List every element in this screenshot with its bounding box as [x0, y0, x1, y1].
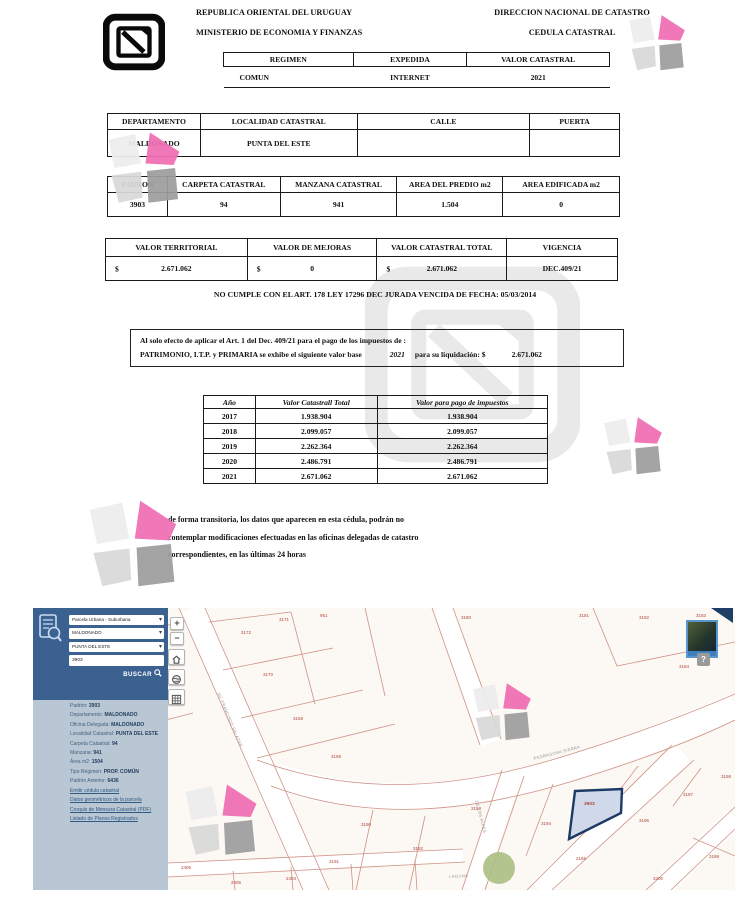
- padron-table: PADRON CARPETA CATASTRAL MANZANA CATASTR…: [107, 176, 620, 217]
- parcel-number-label: 3180: [461, 615, 471, 620]
- info-field: Manzana: 941: [70, 750, 164, 756]
- col-header: Valor para pago de impuestos: [377, 396, 547, 409]
- parcel-number-label: 3169: [293, 716, 303, 721]
- parcel-number-label: 3172: [241, 630, 251, 635]
- parcel-number-label: 3182: [639, 615, 649, 620]
- col-header: VALOR CATASTRAL TOTAL: [377, 239, 507, 257]
- cell-area-predio: 1.504: [397, 193, 503, 217]
- parcel-type-select[interactable]: Parcela Urbana - Suburbana: [69, 615, 164, 626]
- sidebar-search-panel: Parcela Urbana - Suburbana MALDONADO PUN…: [33, 608, 168, 700]
- header-direction: DIRECCION NACIONAL DE CATASTRO: [484, 3, 660, 23]
- parcel-number-label: 3199: [709, 854, 719, 859]
- dnc-logo: [103, 12, 165, 72]
- layers-button[interactable]: [168, 689, 185, 705]
- parcel-number-label: 3200: [653, 876, 663, 881]
- sidebar-info-list: Padrón: 3903Departamento: MALDONADOOfici…: [70, 703, 164, 784]
- col-header: CARPETA CATASTRAL: [167, 177, 280, 193]
- cell-regimen: COMUN: [224, 67, 354, 88]
- locality-select[interactable]: PUNTA DEL ESTE: [69, 642, 164, 653]
- col-header: Valor Catastrall Total: [255, 396, 377, 409]
- currency-symbol: $: [386, 264, 390, 273]
- col-header: Año: [204, 396, 256, 409]
- col-header: VALOR TERRITORIAL: [106, 239, 248, 257]
- tax-year: 2021: [390, 350, 405, 359]
- parcel-number-label: 3194: [541, 821, 551, 826]
- header-doc-title: CEDULA CATASTRAL: [484, 23, 660, 43]
- basemap-button[interactable]: [168, 669, 185, 685]
- page: REPUBLICA ORIENTAL DEL URUGUAY MINISTERI…: [0, 0, 751, 900]
- col-header: PUERTA: [530, 114, 620, 130]
- parcel-number-label: 3183: [696, 613, 706, 618]
- home-extent-button[interactable]: [168, 649, 185, 665]
- sidebar-app-logo-icon: [38, 613, 62, 643]
- info-field: Localidad Catastral: PUNTA DEL ESTE: [70, 731, 164, 737]
- years-table: Año Valor Catastrall Total Valor para pa…: [203, 395, 548, 484]
- help-button[interactable]: ?: [697, 653, 710, 666]
- street-name-label: PEDRAGOSA SIERRA: [533, 744, 581, 760]
- street-name-label: LAGUNA: [449, 873, 468, 879]
- transitional-note: de forma transitoria, los datos que apar…: [168, 511, 568, 564]
- col-header: AREA EDIFICADA m2: [503, 177, 620, 193]
- parcel-number-label: 2168: [576, 856, 586, 861]
- cell-valor-territorial: $ 2.671.062: [106, 257, 248, 281]
- parcel-number-label: 3171: [279, 617, 289, 622]
- tax-box-line1: Al solo efecto de aplicar el Art. 1 del …: [140, 334, 623, 348]
- info-field: Departamento: MALDONADO: [70, 712, 164, 718]
- selected-parcel-label: 3903: [584, 802, 595, 807]
- info-field: Carpeta Catastral: 94: [70, 741, 164, 747]
- table-row: 2019 2.262.364 2.262.364: [204, 439, 548, 454]
- tax-base-value: 2.671.062: [512, 350, 542, 359]
- col-header: EXPEDIDA: [353, 53, 467, 67]
- department-select[interactable]: MALDONADO: [69, 628, 164, 639]
- globe-icon: [171, 672, 182, 689]
- cell-padron: 3903: [108, 193, 168, 217]
- table-row: 2018 2.099.057 2.099.057: [204, 424, 548, 439]
- sidebar-link[interactable]: Datos geométricos de la parcela: [70, 797, 164, 803]
- col-header: REGIMEN: [224, 53, 354, 67]
- parcel-number-label: 3196: [639, 818, 649, 823]
- parcel-number-label: 3168: [331, 754, 341, 759]
- col-header: LOCALIDAD CATASTRAL: [200, 114, 357, 130]
- regimen-table: REGIMEN EXPEDIDA VALOR CATASTRAL COMUN I…: [223, 52, 610, 88]
- parcel-number-label: 951: [320, 613, 328, 618]
- parcel-number-label: 2404: [286, 876, 296, 881]
- valores-table: VALOR TERRITORIAL VALOR DE MEJORAS VALOR…: [105, 238, 618, 281]
- tax-box-line2: PATRIMONIO, I.T.P. y PRIMARIA se exhibe …: [140, 348, 623, 362]
- col-header: VALOR CATASTRAL: [467, 53, 610, 67]
- table-row: 2020 2.486.791 2.486.791: [204, 454, 548, 469]
- cell-manzana: 941: [280, 193, 397, 217]
- gis-map[interactable]: 3903 31743163316231611154315931586416240…: [33, 608, 735, 890]
- cell-vigencia: DEC.409/21: [507, 257, 618, 281]
- info-field: Padrón: 3903: [70, 703, 164, 709]
- sidebar-link[interactable]: Listado de Planos Registrados: [70, 816, 164, 822]
- parcel-number-label: 3197: [683, 792, 693, 797]
- col-header: CALLE: [357, 114, 530, 130]
- cell-valor-catastral: 2021: [467, 67, 610, 88]
- cell-valor-mejoras: $ 0: [247, 257, 377, 281]
- home-icon: [171, 652, 182, 669]
- sidebar-info-panel: Padrón: 3903Departamento: MALDONADOOfici…: [33, 700, 168, 890]
- col-header: MANZANA CATASTRAL: [280, 177, 397, 193]
- magnifier-icon: [154, 669, 162, 679]
- buscar-button[interactable]: BUSCAR: [123, 669, 162, 679]
- info-field: Oficina Delegada: MALDONADO: [70, 722, 164, 728]
- parcel-number-label: 2406: [181, 865, 191, 870]
- tax-box: Al solo efecto de aplicar el Art. 1 del …: [130, 329, 624, 367]
- col-header: VIGENCIA: [507, 239, 618, 257]
- cell-departamento: MALDONADO: [108, 130, 201, 157]
- cell-localidad: PUNTA DEL ESTE: [200, 130, 357, 157]
- cell-puerta: [530, 130, 620, 157]
- padron-search-input[interactable]: [69, 655, 164, 666]
- currency-symbol: $: [115, 264, 119, 273]
- info-field: Área m2: 1504: [70, 759, 164, 765]
- parcel-number-label: 263: [518, 696, 526, 701]
- parcel-number-label: 3170: [263, 672, 273, 677]
- parcel-number-label: 3190: [361, 822, 371, 827]
- map-sidebar: Parcela Urbana - Suburbana MALDONADO PUN…: [33, 608, 168, 890]
- cell-valor-total: $ 2.671.062: [377, 257, 507, 281]
- location-table: DEPARTAMENTO LOCALIDAD CATASTRAL CALLE P…: [107, 113, 620, 157]
- parcel-number-label: 3192: [413, 846, 423, 851]
- table-row: 2021 2.671.062 2.671.062: [204, 469, 548, 484]
- parcel-number-label: 3184: [679, 664, 689, 669]
- parcel-number-label: 3191: [329, 859, 339, 864]
- sidebar-link[interactable]: Croquis de Mensura Catastral (PDF): [70, 807, 164, 813]
- cell-expedida: INTERNET: [353, 67, 467, 88]
- zoom-in-button[interactable]: +: [170, 617, 184, 630]
- grid-layers-icon: [171, 692, 182, 709]
- sidebar-link[interactable]: Emitir cédula catastral: [70, 788, 164, 794]
- header-ministry: MINISTERIO DE ECONOMIA Y FINANZAS: [196, 23, 468, 43]
- parcel-number-label: 3181: [579, 613, 589, 618]
- sidebar-links: Emitir cédula catastralDatos geométricos…: [70, 788, 164, 823]
- parcel-number-label: 3198: [721, 774, 731, 779]
- cell-carpeta: 94: [167, 193, 280, 217]
- info-field: Padrón Anterior: 6436: [70, 778, 164, 784]
- info-field: Tipo Régimen: PROP. COMÚN: [70, 769, 164, 775]
- cell-calle: [357, 130, 530, 157]
- col-header: DEPARTAMENTO: [108, 114, 201, 130]
- col-header: AREA DEL PREDIO m2: [397, 177, 503, 193]
- cell-area-edificada: 0: [503, 193, 620, 217]
- zoom-out-button[interactable]: −: [170, 632, 184, 645]
- parcel-number-label: 2405: [231, 880, 241, 885]
- table-row: 2017 1.938.904 1.938.904: [204, 409, 548, 424]
- notice-line: NO CUMPLE CON EL ART. 178 LEY 17296 DEC …: [60, 290, 690, 299]
- header-country: REPUBLICA ORIENTAL DEL URUGUAY: [196, 3, 468, 23]
- col-header: PADRON: [108, 177, 168, 193]
- currency-symbol: $: [257, 264, 261, 273]
- col-header: VALOR DE MEJORAS: [247, 239, 377, 257]
- street-name-label: AV. FRANCISCO SALAZAR: [216, 692, 243, 748]
